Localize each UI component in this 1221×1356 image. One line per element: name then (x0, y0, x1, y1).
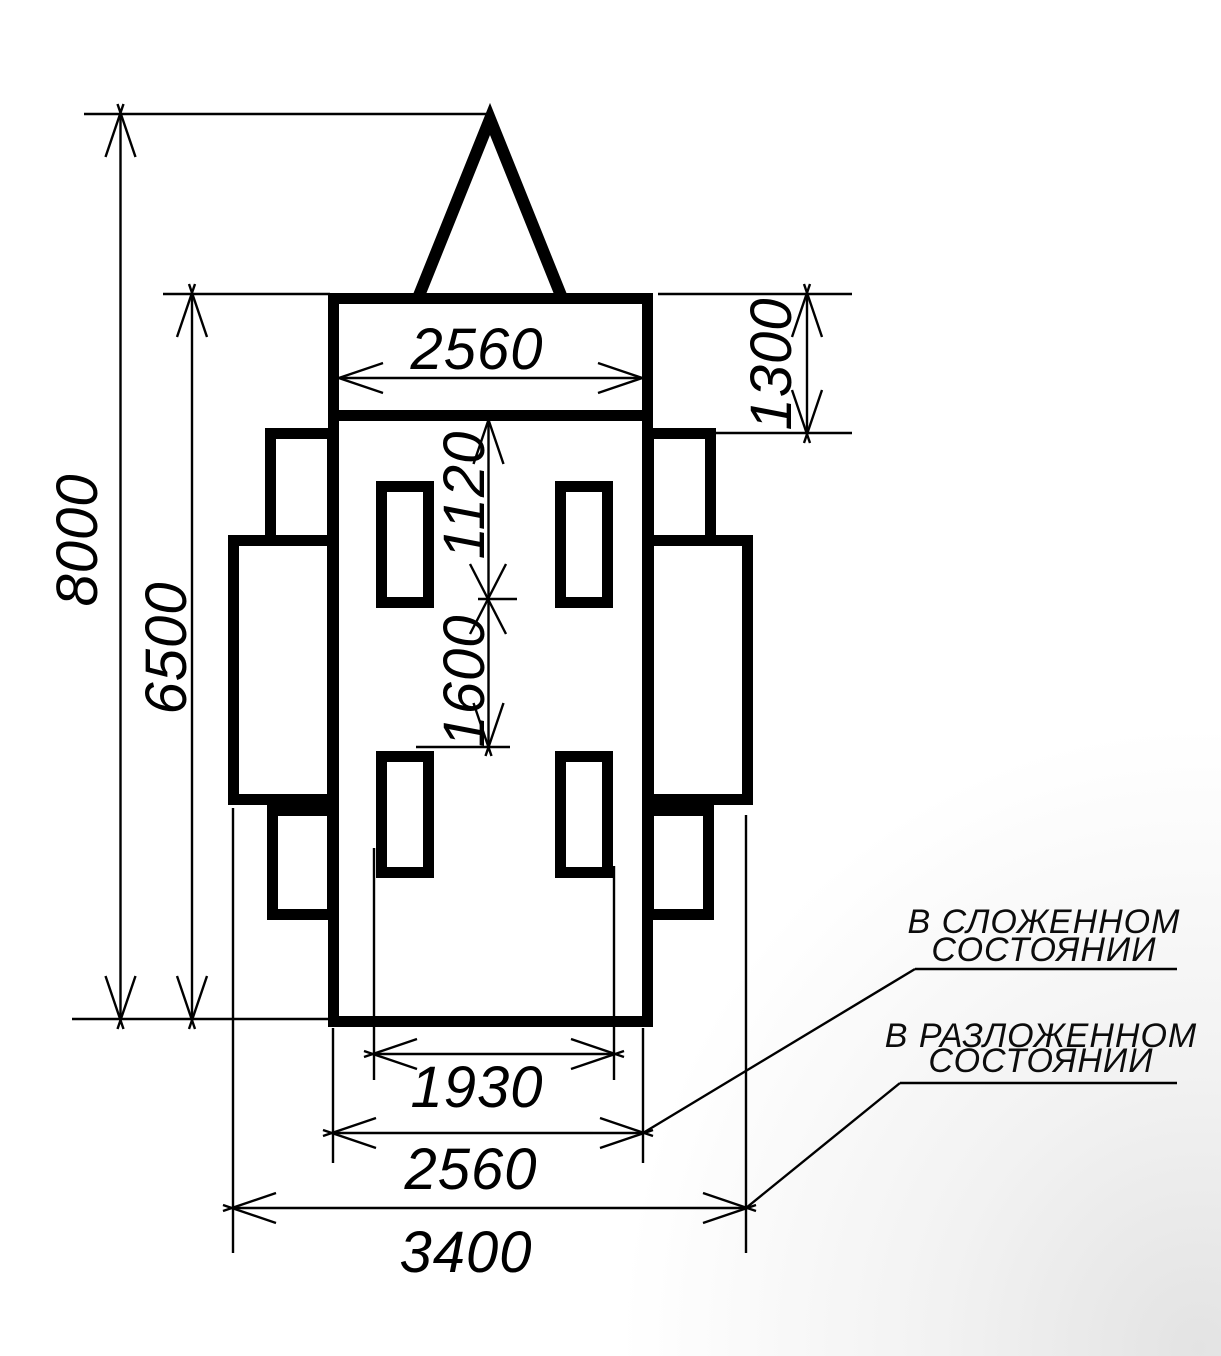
dim-text-8000: 8000 (45, 473, 110, 606)
wheel-front-left (382, 487, 429, 603)
flap-upper-right (649, 434, 711, 541)
trailer-dimension-drawing: 8000 6500 2560 1300 (0, 0, 1221, 1356)
dim-text-6500: 6500 (134, 581, 199, 714)
drawing-canvas: 8000 6500 2560 1300 (0, 0, 1221, 1356)
wheel-rear-left (382, 757, 429, 873)
wheel-front-right (561, 487, 608, 603)
dim-text-1930: 1930 (410, 1055, 543, 1120)
wheel-rear-right (561, 757, 608, 873)
note-unfolded-line2: СОСТОЯНИИ (928, 1042, 1153, 1080)
note-folded-line2: СОСТОЯНИИ (931, 931, 1156, 969)
dim-text-1300: 1300 (739, 297, 804, 430)
flap-main-right (649, 541, 748, 800)
dim-text-2560-top: 2560 (409, 317, 543, 382)
dim-text-2560-bottom: 2560 (403, 1137, 537, 1202)
flap-lower-right (649, 811, 709, 915)
flap-lower-left (273, 811, 333, 915)
dim-text-1120: 1120 (432, 431, 497, 560)
dim-text-3400: 3400 (399, 1220, 532, 1285)
flap-upper-left (271, 434, 333, 541)
dim-text-1600: 1600 (432, 614, 497, 747)
flap-main-left (234, 541, 333, 800)
